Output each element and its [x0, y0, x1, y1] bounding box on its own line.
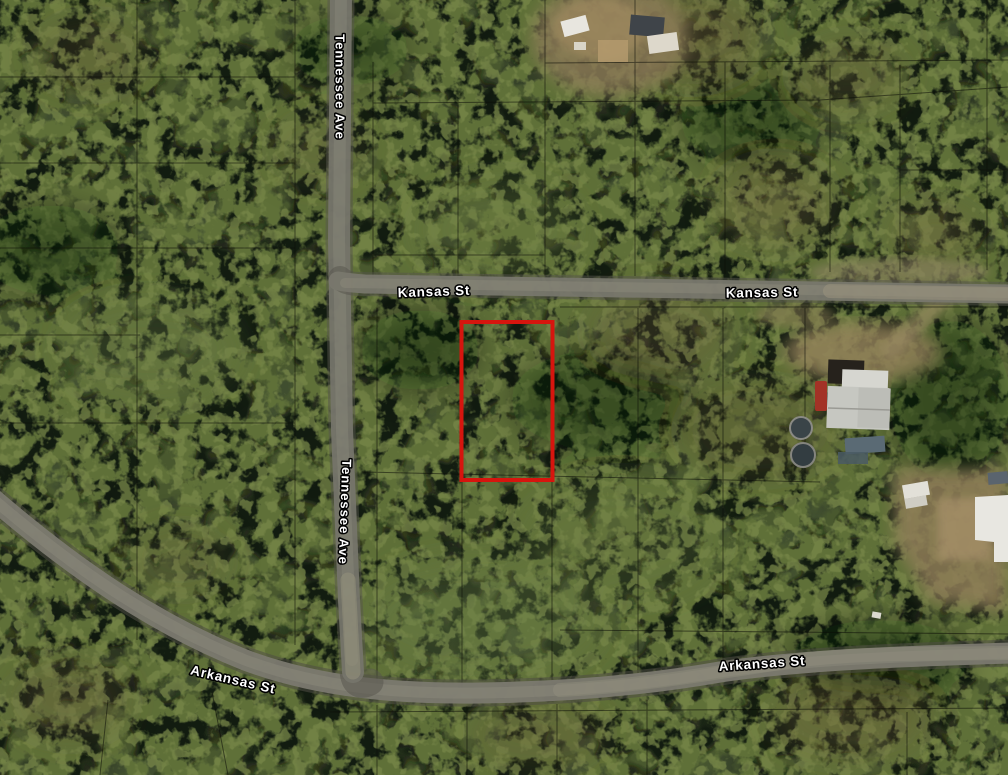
- street-label-kansas-left: Kansas St: [398, 283, 471, 301]
- round-tank-2: [791, 443, 815, 467]
- debris-sand-pile: [598, 40, 628, 62]
- house-roof-shade: [857, 387, 890, 428]
- aerial-photo: Tennessee Ave Tennessee Ave Kansas St Ka…: [0, 0, 1008, 775]
- aerial-map: Tennessee Ave Tennessee Ave Kansas St Ka…: [0, 0, 1008, 775]
- street-label-kansas-right: Kansas St: [726, 284, 799, 300]
- red-truck: [815, 381, 827, 411]
- trailer-2: [838, 452, 868, 464]
- round-tank-1: [790, 417, 812, 439]
- blue-object: [988, 471, 1008, 485]
- debris-white-3: [574, 42, 586, 50]
- trailer: [844, 436, 885, 455]
- street-label-tennessee-top: Tennessee Ave: [333, 34, 348, 140]
- debris-dark: [629, 15, 665, 38]
